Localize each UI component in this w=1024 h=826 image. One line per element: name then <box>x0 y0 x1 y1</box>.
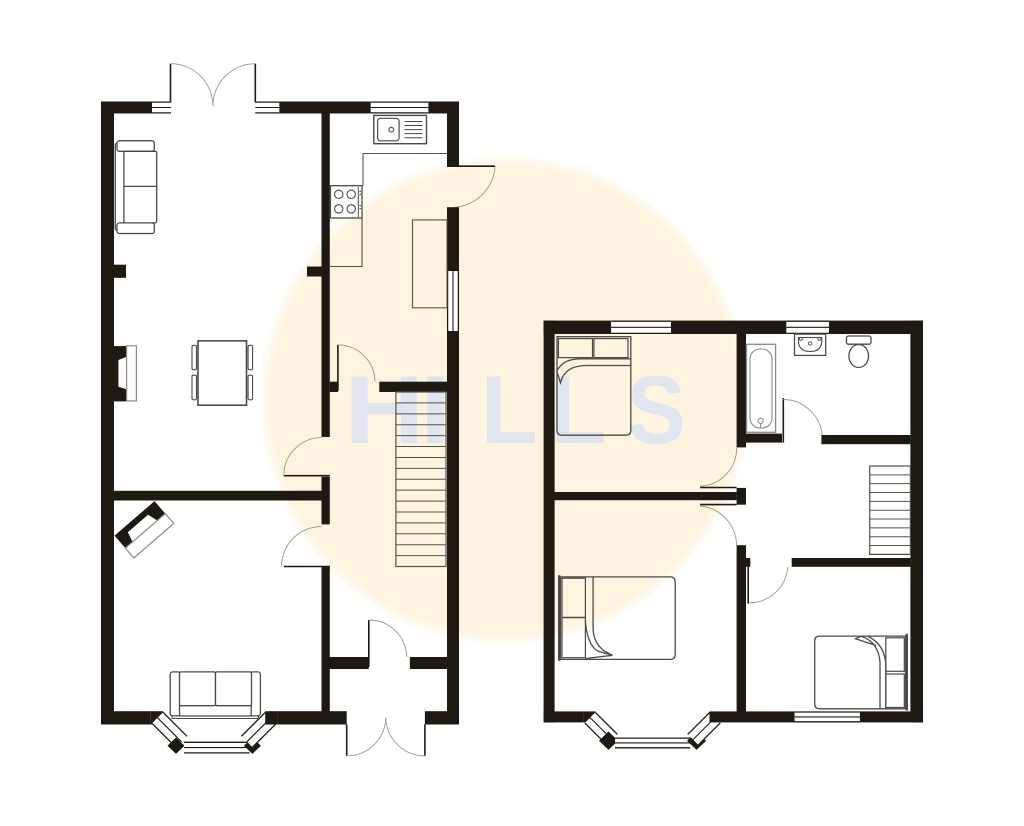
svg-text:L: L <box>550 356 607 464</box>
svg-text:L: L <box>481 356 538 464</box>
svg-text:I: I <box>419 355 451 463</box>
svg-text:H: H <box>344 357 424 465</box>
svg-text:S: S <box>627 355 686 463</box>
